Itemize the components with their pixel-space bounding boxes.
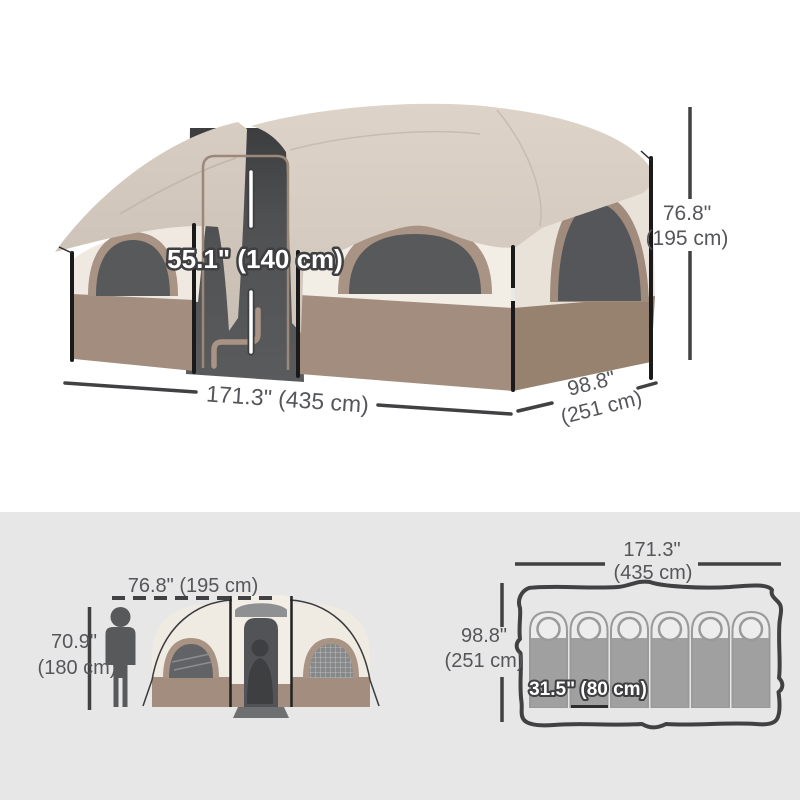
lower-wall-front-left — [72, 294, 194, 371]
dimension-line — [65, 383, 196, 392]
sleeping-bag — [733, 612, 770, 707]
side-width-label: 76.8" (195 cm) — [128, 575, 259, 597]
sleeping-bag-width-label: 31.5" (80 cm) — [529, 679, 647, 700]
floor-plan-diagram: 171.3" (435 cm) 98.8" (251 cm) 31.5" (80… — [445, 539, 783, 727]
tent-3d-illustration: 55.1" (140 cm) 76.8" (195 cm) 171.3" (43… — [0, 0, 800, 512]
detail-diagrams: 76.8" (195 cm) 70.9" (180 cm) — [0, 512, 800, 800]
dimension-line — [638, 383, 656, 388]
plan-width-metric-label: (435 cm) — [614, 562, 693, 584]
plan-depth-label: 98.8" — [461, 625, 507, 647]
plan-depth-metric-label: (251 cm) — [445, 650, 524, 672]
sleeping-bag — [652, 612, 689, 707]
height-metric-label: (195 cm) — [646, 227, 729, 250]
door-ground-shadow — [233, 707, 289, 718]
pole-zipper-mark — [511, 288, 515, 301]
person-height-label: 70.9" — [51, 631, 97, 653]
dimension-line — [378, 405, 511, 414]
person-height-metric-label: (180 cm) — [38, 657, 117, 679]
lower-wall-front-right — [300, 295, 513, 391]
sleeping-bag — [692, 612, 729, 707]
side-lower-wall-center-left — [230, 684, 244, 707]
height-dimension: 76.8" (195 cm) — [646, 107, 729, 360]
door-height-label: 55.1" (140 cm) — [167, 244, 343, 274]
guy-line — [143, 680, 152, 706]
side-lower-wall-center-right — [278, 684, 292, 707]
product-dimension-diagram: 55.1" (140 cm) 76.8" (195 cm) 171.3" (43… — [0, 0, 800, 800]
side-lower-wall-left — [152, 677, 230, 707]
main-3d-view-section: 55.1" (140 cm) 76.8" (195 cm) 171.3" (43… — [0, 0, 800, 512]
dimension-line — [518, 403, 552, 411]
width-label: 171.3" (435 cm) — [205, 380, 369, 417]
height-label: 76.8" — [663, 202, 711, 225]
person-icon — [106, 607, 136, 707]
width-dimension: 171.3" (435 cm) — [65, 380, 511, 417]
side-lower-wall-right — [292, 677, 370, 707]
detail-diagrams-section: 76.8" (195 cm) 70.9" (180 cm) — [0, 512, 800, 800]
plan-width-label: 171.3" — [623, 539, 680, 561]
guy-line — [370, 680, 379, 706]
side-view-diagram: 76.8" (195 cm) 70.9" (180 cm) — [38, 575, 379, 718]
